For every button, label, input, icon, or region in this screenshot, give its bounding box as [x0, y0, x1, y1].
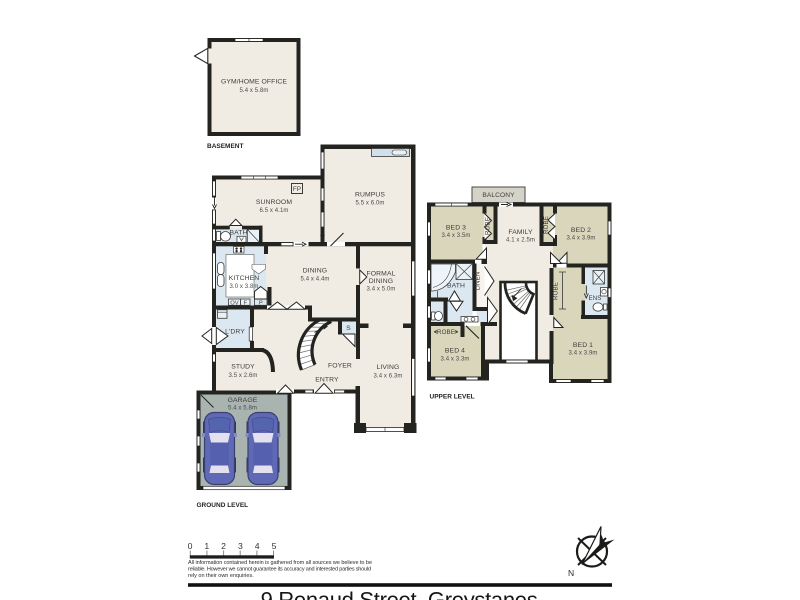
svg-text:5.4 x 4.4m: 5.4 x 4.4m	[300, 277, 329, 283]
svg-text:ENTRY: ENTRY	[315, 377, 339, 384]
svg-text:BED 1: BED 1	[573, 342, 593, 349]
svg-text:3.4 x 3.3m: 3.4 x 3.3m	[440, 357, 469, 363]
svg-text:GARAGE: GARAGE	[228, 397, 258, 404]
svg-text:SUNROOM: SUNROOM	[256, 199, 292, 206]
svg-text:GROUND LEVEL: GROUND LEVEL	[197, 502, 249, 509]
svg-text:DINING: DINING	[369, 278, 393, 285]
svg-text:5: 5	[272, 541, 277, 551]
svg-text:BATH: BATH	[229, 230, 247, 237]
svg-text:9 Renaud Street, Greystanes: 9 Renaud Street, Greystanes	[261, 588, 538, 600]
svg-text:4: 4	[255, 541, 260, 551]
svg-text:ROBE: ROBE	[543, 216, 550, 234]
svg-text:FORMAL: FORMAL	[367, 271, 396, 278]
svg-text:3.4 x 5.0m: 3.4 x 5.0m	[366, 287, 395, 293]
svg-text:3.0 x 3.8m: 3.0 x 3.8m	[229, 284, 258, 290]
svg-text:FOYER: FOYER	[328, 363, 352, 370]
svg-text:L'DRY: L'DRY	[225, 329, 245, 336]
svg-text:FP: FP	[293, 186, 301, 193]
svg-text:ROBE: ROBE	[485, 217, 492, 235]
svg-text:All information contained here: All information contained herein is gath…	[188, 560, 372, 566]
svg-text:BED 3: BED 3	[446, 225, 466, 232]
svg-text:LINEN: LINEN	[475, 272, 482, 291]
svg-text:F: F	[244, 300, 248, 306]
svg-text:rely on their own enquiries.: rely on their own enquiries.	[188, 573, 254, 579]
svg-text:reliable. However we cannot gu: reliable. However we cannot guarantee it…	[188, 567, 371, 573]
svg-text:UPPER LEVEL: UPPER LEVEL	[430, 394, 475, 401]
svg-text:OV: OV	[230, 300, 239, 306]
svg-text:ENS: ENS	[588, 295, 601, 302]
svg-text:ROBE: ROBE	[553, 282, 560, 300]
svg-text:BED 4: BED 4	[445, 348, 465, 355]
svg-text:STUDY: STUDY	[231, 364, 255, 371]
svg-text:LIVING: LIVING	[377, 364, 400, 371]
svg-text:FAMILY: FAMILY	[508, 229, 533, 236]
svg-text:DINING: DINING	[303, 268, 327, 275]
svg-text:5.4 x 5.8m: 5.4 x 5.8m	[239, 88, 268, 94]
svg-text:3.5 x 2.6m: 3.5 x 2.6m	[228, 373, 257, 379]
svg-text:3.4 x 3.9m: 3.4 x 3.9m	[568, 351, 597, 357]
svg-text:5.5 x 6.0m: 5.5 x 6.0m	[355, 201, 384, 207]
svg-text:BASEMENT: BASEMENT	[207, 143, 244, 150]
svg-text:4.1 x 2.5m: 4.1 x 2.5m	[506, 238, 535, 244]
svg-text:0: 0	[188, 541, 193, 551]
svg-text:P: P	[259, 300, 263, 306]
svg-text:RUMPUS: RUMPUS	[355, 192, 385, 199]
svg-text:5.4 x 5.8m: 5.4 x 5.8m	[228, 406, 257, 412]
svg-text:S: S	[346, 325, 351, 332]
svg-text:3: 3	[238, 541, 243, 551]
svg-text:1: 1	[204, 541, 209, 551]
svg-text:3.4 x 6.3m: 3.4 x 6.3m	[373, 374, 402, 380]
svg-text:BALCONY: BALCONY	[482, 192, 515, 199]
svg-text:BED 2: BED 2	[571, 227, 591, 234]
svg-text:2: 2	[221, 541, 226, 551]
svg-text:3.4 x 3.9m: 3.4 x 3.9m	[566, 236, 595, 242]
svg-text:6.5 x 4.1m: 6.5 x 4.1m	[259, 208, 288, 214]
svg-text:GYM/HOME OFFICE: GYM/HOME OFFICE	[221, 79, 287, 86]
svg-text:ROBE: ROBE	[437, 329, 455, 336]
svg-text:N: N	[568, 568, 574, 578]
svg-text:BATH: BATH	[447, 283, 465, 290]
svg-text:3.4 x 3.5m: 3.4 x 3.5m	[441, 233, 470, 239]
svg-text:KITCHEN: KITCHEN	[229, 275, 260, 282]
